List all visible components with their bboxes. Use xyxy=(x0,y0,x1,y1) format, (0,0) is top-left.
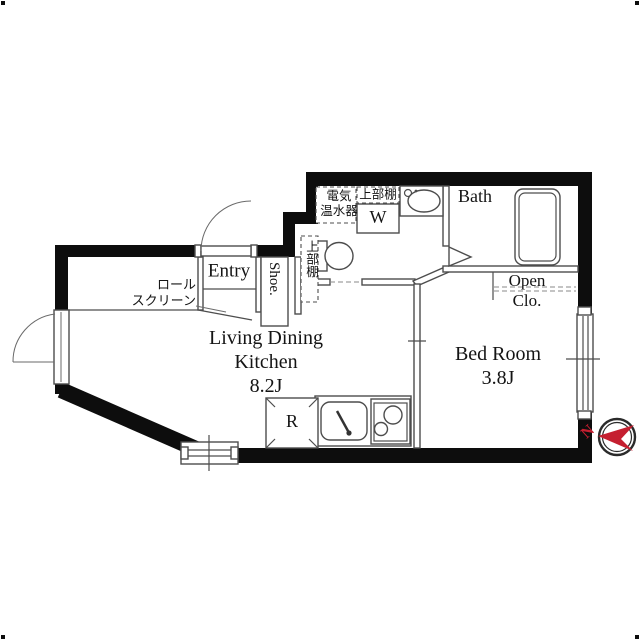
floorplan-drawing xyxy=(0,0,640,640)
corner-mark xyxy=(1,1,5,5)
ldk-size: 8.2J xyxy=(209,374,323,398)
bath-folding-door-icon xyxy=(449,247,471,266)
stove-icon xyxy=(371,399,410,444)
entry-door xyxy=(195,201,257,257)
roll-screen-label: ロール スクリーン xyxy=(100,277,196,308)
shoe-cabinet-label: Shoe. xyxy=(265,262,283,296)
bedroom-window xyxy=(566,307,600,419)
bedroom-room-label: Bed Room 3.8J xyxy=(455,342,541,390)
ldk-label-line1: Living Dining xyxy=(209,326,323,350)
bathtub-icon xyxy=(515,189,560,265)
roll-screen-line1: ロール xyxy=(100,277,196,293)
left-terrace-door xyxy=(13,310,69,384)
bath-room-label: Bath xyxy=(458,186,492,208)
ldk-room-label: Living Dining Kitchen 8.2J xyxy=(209,326,323,398)
entry-room-label: Entry xyxy=(208,261,250,284)
washbasin-icon xyxy=(400,186,443,216)
open-closet-label: Open Clo. xyxy=(509,271,546,312)
washer-label: W xyxy=(370,207,387,229)
corner-mark xyxy=(1,635,5,639)
roll-screen-line2: スクリーン xyxy=(100,293,196,309)
bedroom-size: 3.8J xyxy=(455,366,541,390)
floorplan-page: Living Dining Kitchen 8.2J Bed Room 3.8J… xyxy=(0,0,640,640)
bedroom-label: Bed Room xyxy=(455,342,541,366)
toilet-icon xyxy=(316,241,353,271)
kitchen-sink-icon xyxy=(321,402,367,440)
water-heater-line2: 温水器 xyxy=(320,204,358,219)
compass-icon xyxy=(598,419,635,455)
corner-mark xyxy=(635,1,639,5)
corner-mark xyxy=(635,635,639,639)
ldk-label-line2: Kitchen xyxy=(209,350,323,374)
open-closet-line2: Clo. xyxy=(509,291,546,311)
upper-shelf-side-label: 上部棚 xyxy=(303,240,318,278)
open-closet-line1: Open xyxy=(509,271,546,291)
water-heater-line1: 電気 xyxy=(320,189,358,204)
upper-shelf-top-label: 上部棚 xyxy=(359,188,397,203)
water-heater-label: 電気 温水器 xyxy=(320,189,358,219)
refrigerator-label: R xyxy=(286,411,298,433)
